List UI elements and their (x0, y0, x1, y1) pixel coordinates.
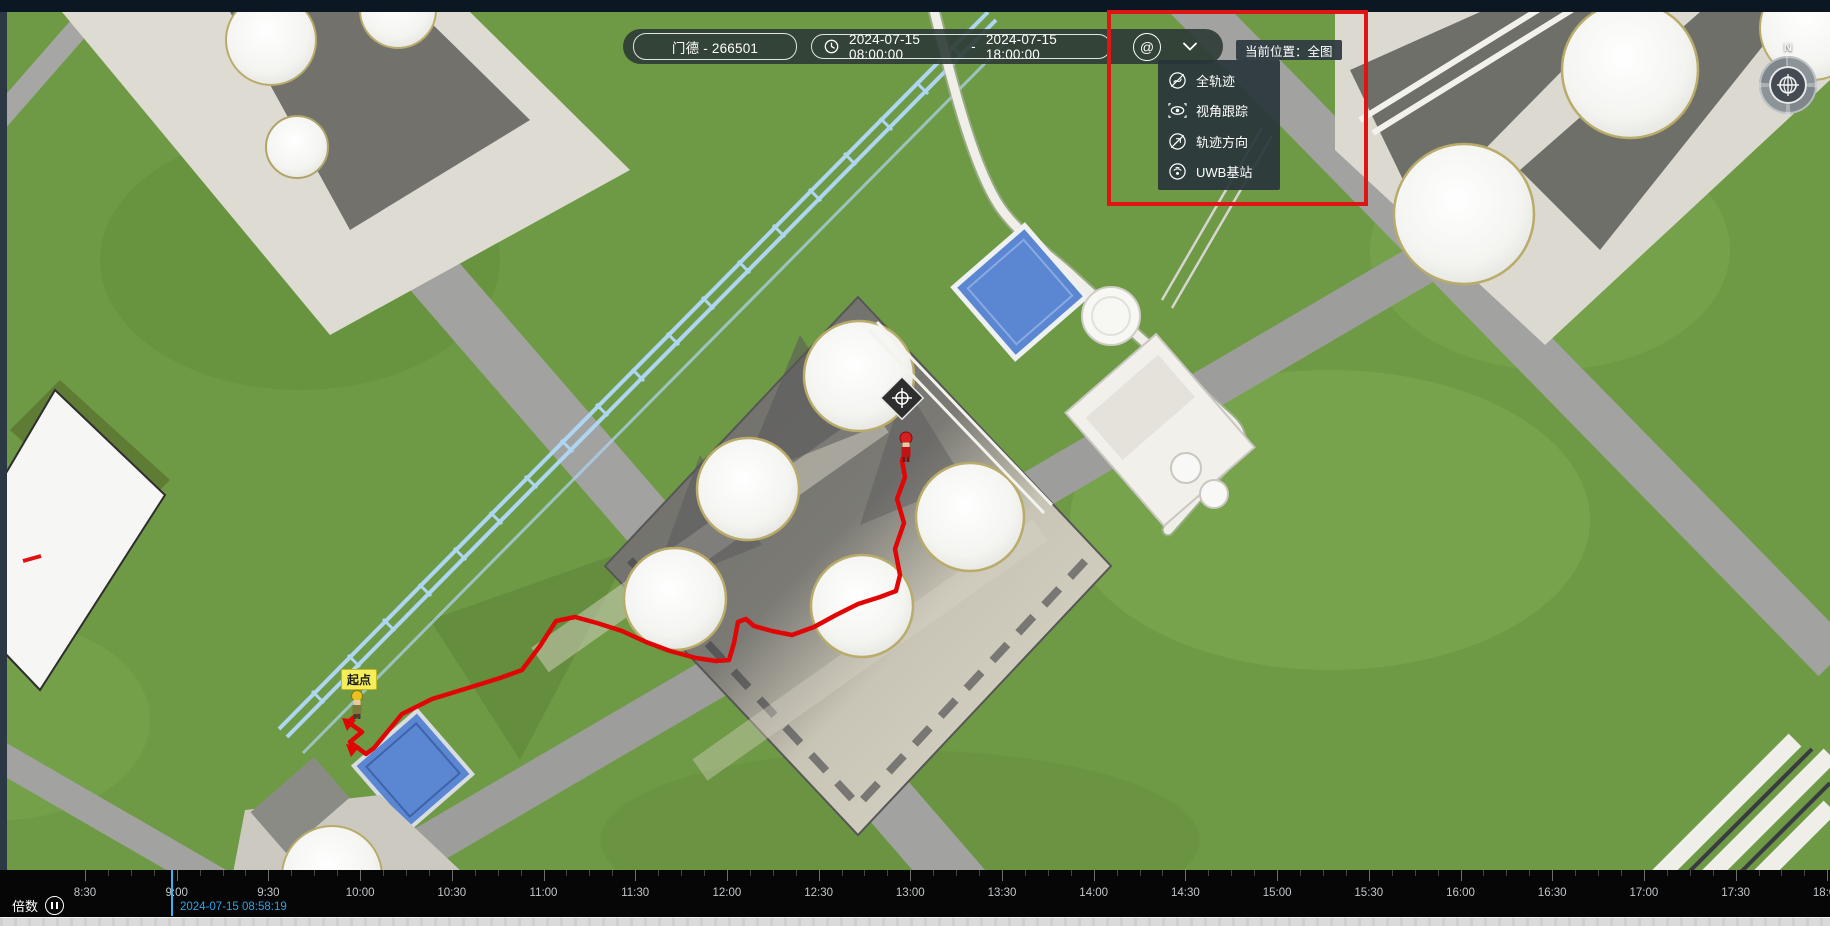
timeline-tick-label: 10:00 (346, 887, 375, 899)
compass-target-icon (1769, 66, 1807, 104)
timeline-tick-label: 9:00 (165, 887, 187, 899)
menu-item-trajectory-direction[interactable]: 轨迹方向 (1168, 129, 1280, 153)
timeline-tick-label: 11:00 (530, 887, 558, 899)
start-point-label: 起点 (341, 669, 377, 690)
timeline-tick-label: 17:30 (1721, 887, 1750, 899)
timeline-tick-label: 9:30 (257, 887, 279, 899)
timeline-tick-label: 16:30 (1538, 887, 1567, 899)
pause-button[interactable] (45, 896, 64, 915)
time-range-separator: - (971, 39, 976, 54)
current-location-tag: 当前位置：全图 (1236, 40, 1342, 60)
menu-item-label: 视角跟踪 (1196, 101, 1248, 120)
uwb-station-icon (1168, 162, 1187, 181)
playback-controls: 倍数 (12, 896, 64, 915)
app-window: 起点 门德 - 266501 2024-07-15 08:00:00 - 202… (0, 0, 1830, 926)
time-start-value: 2024-07-15 08:00:00 (849, 32, 961, 62)
timeline-tick-label: 12:00 (713, 887, 742, 899)
timeline-bar[interactable]: 8:309:009:3010:0010:3011:0011:3012:0012:… (0, 870, 1830, 917)
layers-dropdown-menu: 全轨迹 视角跟踪 轨迹方向 UWB基站 (1158, 60, 1280, 190)
locate-target-button[interactable]: @ (1133, 33, 1161, 61)
top-toolbar: 门德 - 266501 2024-07-15 08:00:00 - 2024-0… (623, 29, 1223, 64)
timeline-tick-label: 17:00 (1630, 887, 1659, 899)
menu-item-uwb-station[interactable]: UWB基站 (1168, 160, 1280, 184)
menu-item-label: 全轨迹 (1196, 71, 1235, 90)
timeline-tick-label: 18:00 (1813, 887, 1830, 899)
timeline-cursor[interactable] (171, 870, 173, 916)
menu-item-view-tracking[interactable]: 视角跟踪 (1168, 99, 1280, 123)
person-select-value: 门德 - 266501 (672, 37, 758, 57)
timeline-tick-label: 8:30 (74, 887, 96, 899)
compass-north-label: N (1784, 40, 1793, 54)
timeline-tick-label: 10:30 (437, 887, 466, 899)
map-canvas[interactable] (0, 0, 1830, 926)
timeline-tick-label: 16:00 (1446, 887, 1475, 899)
timeline-tick-label: 15:00 (1263, 887, 1292, 899)
time-end-value: 2024-07-15 18:00:00 (986, 32, 1098, 62)
person-select[interactable]: 门德 - 266501 (633, 33, 797, 60)
menu-item-label: 轨迹方向 (1196, 132, 1248, 151)
trajectory-direction-icon (1168, 132, 1187, 151)
compass-control[interactable]: N (1759, 56, 1817, 114)
at-target-icon: @ (1140, 39, 1154, 55)
full-trajectory-icon (1168, 71, 1187, 90)
menu-item-label: UWB基站 (1196, 162, 1252, 181)
timeline-tick-label: 12:30 (804, 887, 833, 899)
menu-item-full-trajectory[interactable]: 全轨迹 (1168, 68, 1280, 92)
time-range-picker[interactable]: 2024-07-15 08:00:00 - 2024-07-15 18:00:0… (811, 34, 1111, 59)
view-tracking-icon (1168, 101, 1187, 120)
top-window-strip (0, 0, 1830, 12)
speed-label: 倍数 (12, 896, 38, 915)
chevron-down-icon (1183, 42, 1197, 51)
layers-dropdown-toggle[interactable] (1175, 34, 1205, 60)
timeline-tick-label: 13:00 (896, 887, 925, 899)
timeline-tick-label: 13:30 (988, 887, 1017, 899)
timeline-tick-label: 11:30 (621, 887, 649, 899)
timeline-tick-label: 14:00 (1079, 887, 1108, 899)
clock-icon (824, 39, 839, 54)
timeline-tick-label: 14:30 (1171, 887, 1200, 899)
bottom-scroll-strip[interactable] (0, 917, 1830, 926)
timeline-tick-label: 15:30 (1354, 887, 1383, 899)
left-window-strip (0, 12, 7, 870)
timeline-current-time: 2024-07-15 08:58:19 (180, 901, 287, 913)
